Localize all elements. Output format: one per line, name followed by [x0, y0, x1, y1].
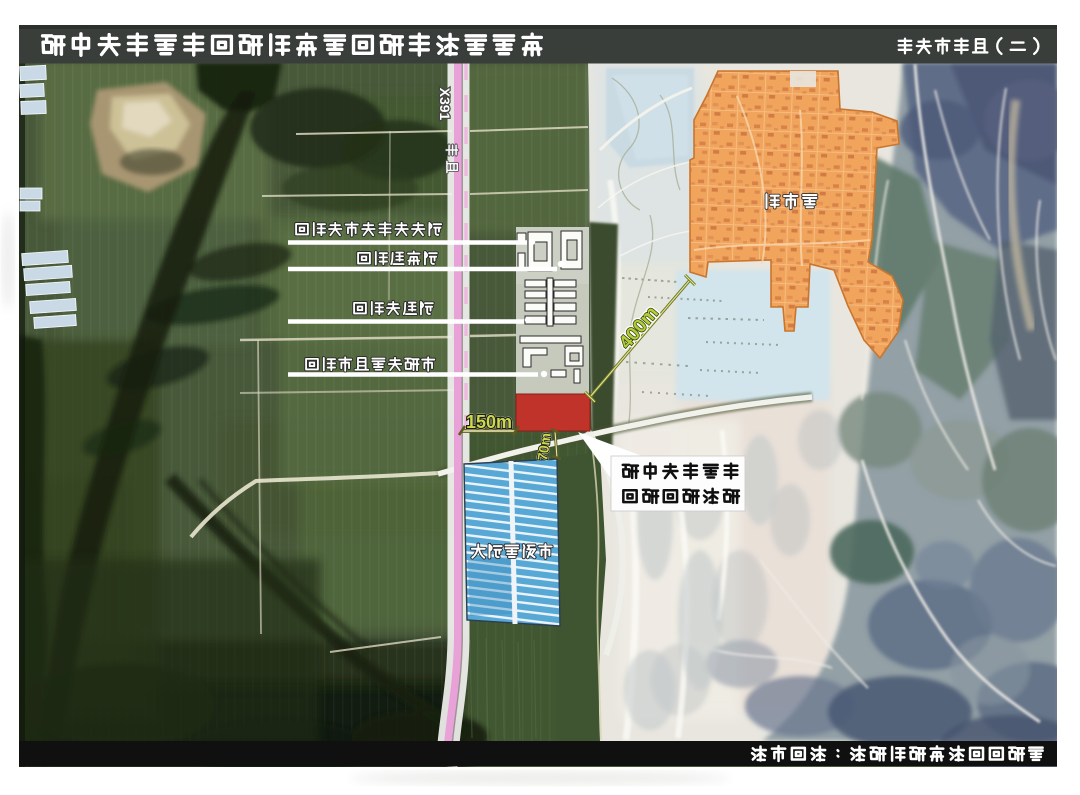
svg-text:X391: X391	[437, 88, 453, 121]
svg-text:150m: 150m	[466, 412, 512, 432]
